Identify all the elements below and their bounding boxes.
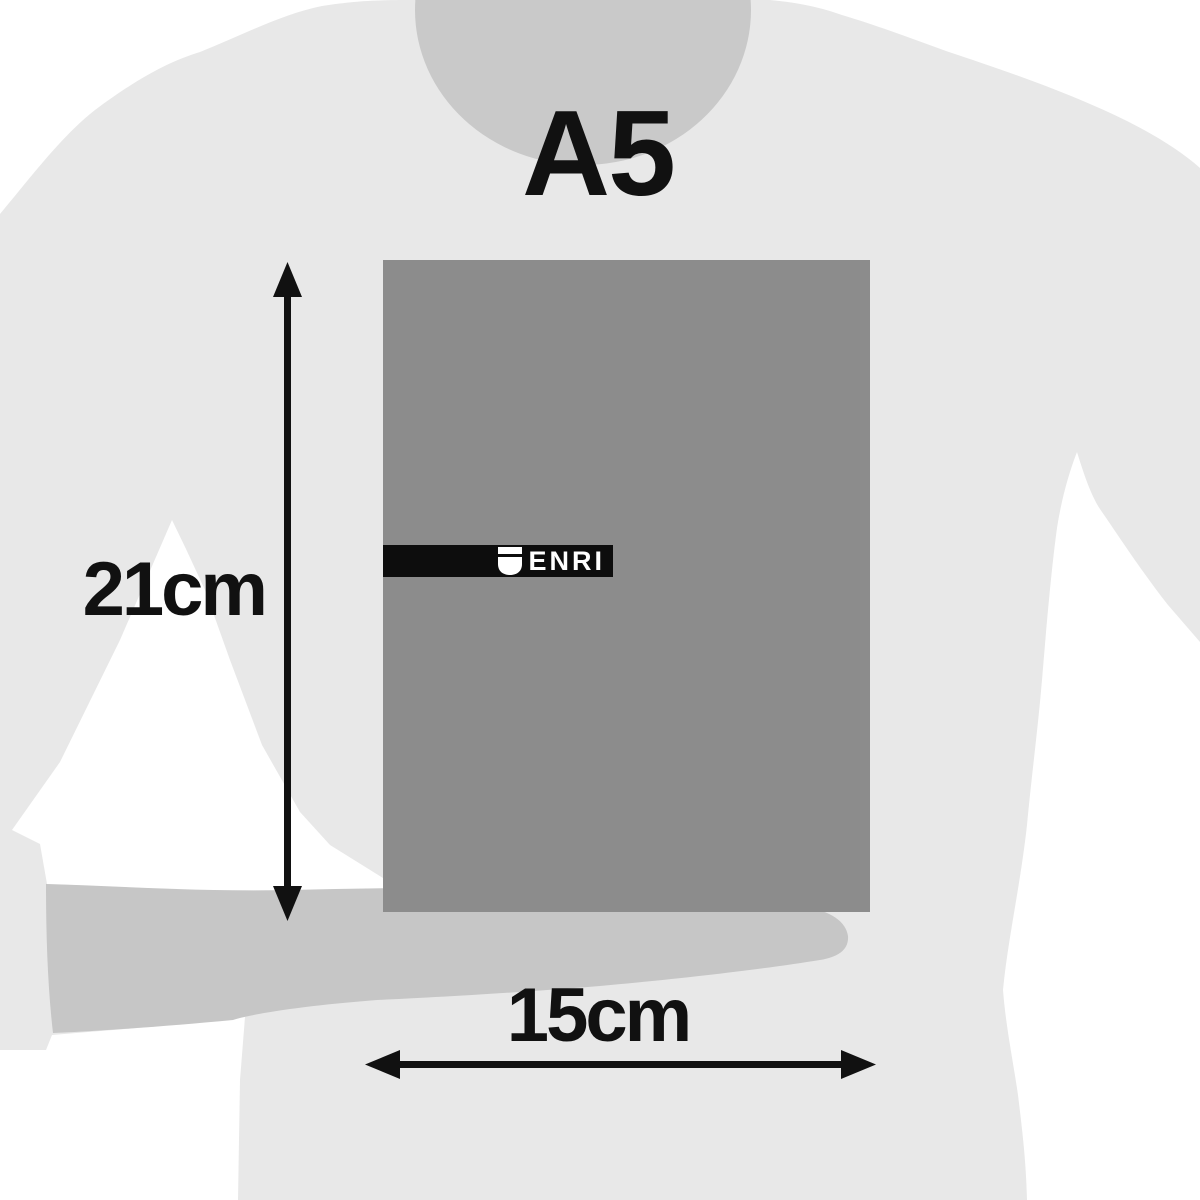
arrowhead-down-icon	[273, 886, 302, 921]
product-dimension-image: ENRI A5 21cm 15cm	[0, 0, 1200, 1200]
arrowhead-up-icon	[273, 262, 302, 297]
arrowhead-left-icon	[365, 1050, 400, 1079]
width-dimension-label: 15cm	[0, 978, 1196, 1054]
height-arrow	[273, 262, 302, 921]
page-title-size: A5	[0, 92, 1196, 214]
height-dimension-label: 21cm	[83, 552, 265, 628]
arrowhead-right-icon	[841, 1050, 876, 1079]
